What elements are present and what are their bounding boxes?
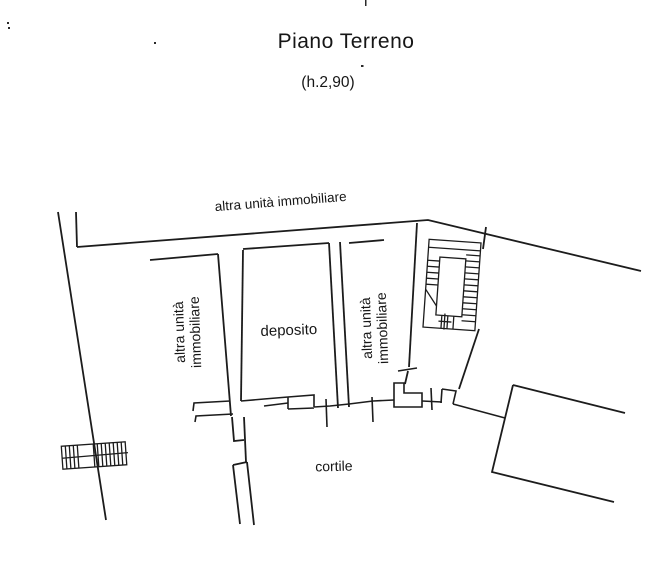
perimeter-walls: [58, 212, 641, 520]
courtyard-wall: [232, 417, 254, 525]
floor-plan-drawing: altra unità immobiliare altra unità immo…: [0, 0, 655, 568]
label-adjacent-unit-left-line2: immobiliare: [186, 296, 204, 368]
courtyard-building-outline: [492, 385, 625, 502]
label-courtyard: cortile: [315, 458, 353, 475]
main-staircase: [423, 239, 481, 331]
scanned-floor-plan-page: Piano Terreno (h.2,90): [0, 0, 655, 568]
label-storage-room: deposito: [260, 321, 317, 340]
scan-noise-specks: [7, 0, 367, 67]
label-adjacent-unit-right-line2: immobiliare: [373, 292, 391, 364]
label-adjacent-unit-top: altra unità immobiliare: [214, 189, 347, 214]
